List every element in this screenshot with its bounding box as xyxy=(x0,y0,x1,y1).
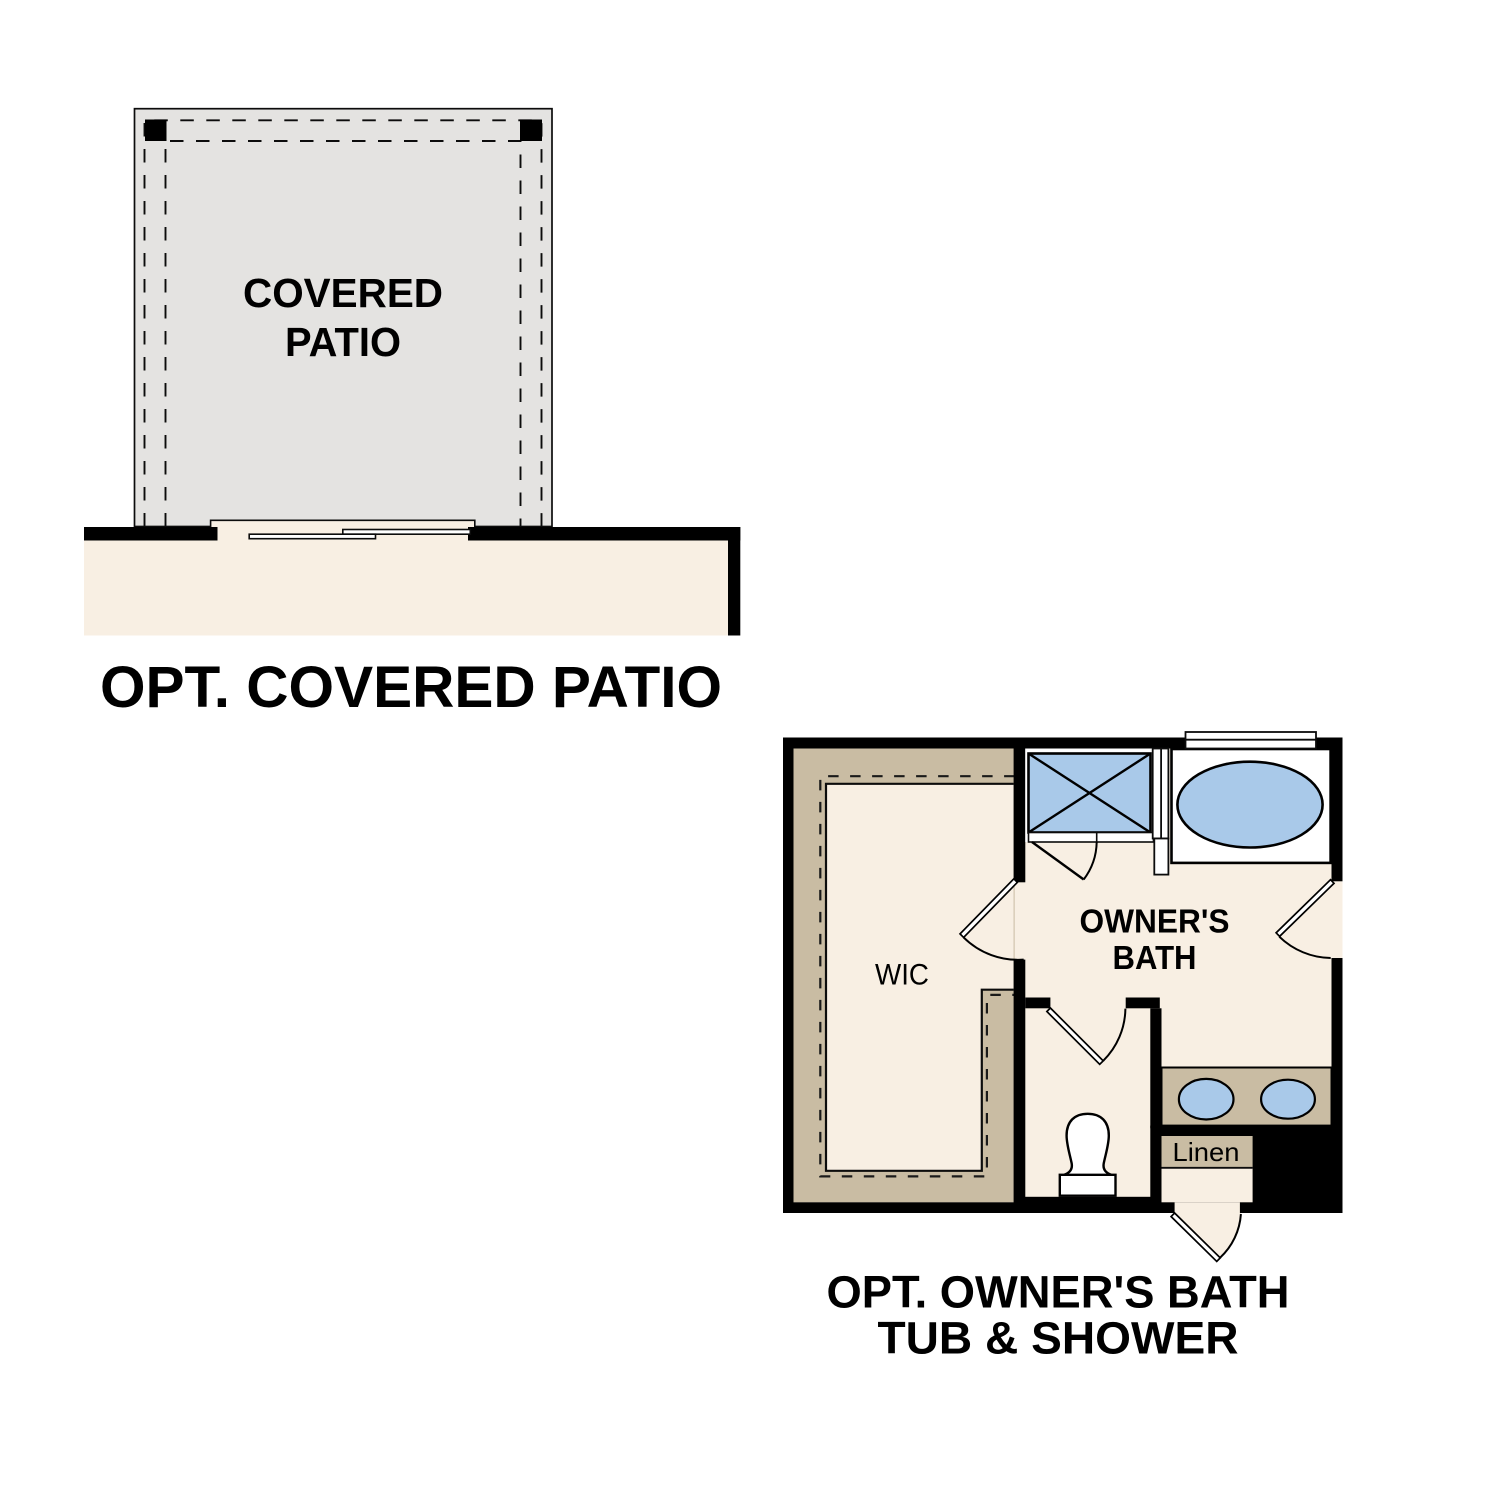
svg-text:OPT. COVERED PATIO: OPT. COVERED PATIO xyxy=(100,655,722,720)
svg-text:WIC: WIC xyxy=(875,959,929,992)
svg-text:COVERED: COVERED xyxy=(243,270,443,316)
svg-text:BATH: BATH xyxy=(1113,939,1197,976)
svg-text:TUB & SHOWER: TUB & SHOWER xyxy=(878,1312,1239,1363)
svg-text:PATIO: PATIO xyxy=(285,319,401,365)
svg-text:Linen: Linen xyxy=(1173,1137,1240,1167)
svg-text:OWNER'S: OWNER'S xyxy=(1080,902,1230,939)
svg-text:OPT. OWNER'S BATH: OPT. OWNER'S BATH xyxy=(827,1267,1290,1318)
